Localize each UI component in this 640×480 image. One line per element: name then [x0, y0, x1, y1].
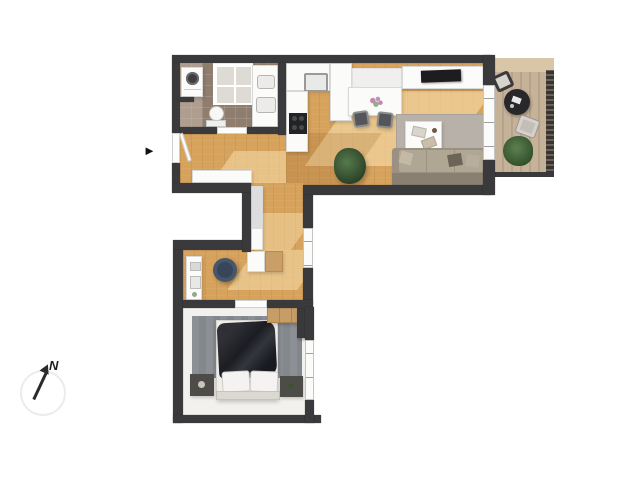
wall-bathroom-bottom-left: [180, 127, 217, 134]
wall-corridor-right-top: [303, 195, 313, 228]
wall-bathroom-bottom-right: [247, 127, 278, 134]
wall-left-entry: [172, 163, 180, 183]
shower: [213, 63, 253, 105]
toilet: [209, 106, 224, 121]
cup: [510, 104, 514, 108]
entrance-arrow-icon: ►: [143, 144, 156, 157]
bedroom-door: [235, 300, 267, 308]
balcony-table: [504, 89, 530, 115]
balcony-door-window: [483, 85, 495, 160]
desk: [186, 256, 202, 300]
wall-bedroom-right-bottom: [305, 400, 314, 423]
wall-left-lower: [173, 250, 183, 423]
kitchen-counter-side: [286, 91, 308, 152]
dining-chair: [376, 111, 394, 129]
stove: [289, 113, 307, 134]
bathroom-vanity: [252, 65, 278, 127]
laptop: [190, 276, 201, 289]
decor-item: [432, 128, 437, 133]
wall-living-right-top: [483, 55, 495, 85]
wall-bedroom-right-top: [305, 307, 314, 340]
wall-living-bottom: [303, 185, 492, 195]
burner: [299, 125, 304, 130]
nightstand: [280, 376, 303, 397]
hall-sideboard: [192, 170, 252, 183]
kitchen-sink: [304, 73, 328, 92]
kitchen-counter-top: [286, 63, 330, 91]
wall-hallway-bottom: [172, 183, 251, 193]
balcony-edge: [495, 172, 554, 177]
tv: [421, 69, 461, 82]
compass-north-label: N: [49, 358, 58, 373]
wall-lowerhall-top: [173, 240, 242, 250]
wall-top: [172, 55, 492, 63]
balcony-railing: [546, 70, 554, 174]
wall-bedroom-bottom: [173, 415, 321, 423]
chair-seat: [217, 262, 233, 278]
apartment-floor-plan: ► N: [0, 0, 640, 480]
wall-bathroom-partition: [178, 97, 194, 102]
dining-bench: [352, 68, 402, 88]
sink: [256, 97, 276, 113]
sofa: [392, 148, 490, 187]
toilet-tank: [206, 120, 226, 127]
hall-dresser-wood: [265, 251, 283, 272]
pillow: [221, 370, 250, 392]
washer-drum: [186, 72, 199, 85]
sink: [257, 75, 275, 89]
burner: [292, 125, 297, 130]
plant: [334, 148, 366, 184]
headboard: [216, 391, 280, 400]
wall-corridor-left: [242, 193, 251, 252]
balcony-plant: [503, 136, 533, 166]
bedroom-window: [305, 340, 314, 400]
chair-cushion: [495, 74, 511, 89]
entrance-door: [172, 133, 180, 163]
lamp: [198, 381, 205, 388]
throw-pillow: [447, 153, 463, 167]
bathroom-door: [217, 127, 247, 134]
wall-living-right-bottom: [483, 160, 495, 195]
throw-pillow: [465, 154, 480, 168]
desk-item: [190, 262, 201, 271]
nightstand: [190, 374, 214, 396]
burner: [299, 116, 304, 121]
desk-plant: [192, 292, 197, 297]
wall-bedroom-top-left: [183, 300, 235, 308]
nightstand-plant: [288, 383, 294, 389]
flower-vase: [368, 95, 384, 109]
north-compass-icon: N: [16, 360, 74, 418]
burner: [292, 116, 297, 121]
book: [411, 126, 427, 139]
hall-dresser: [247, 251, 265, 272]
wall-bathroom-kitchen: [278, 63, 286, 135]
corridor-wardrobe: [251, 186, 263, 250]
tray: [511, 96, 522, 105]
bed: [216, 320, 278, 400]
washer-divider: [184, 89, 201, 90]
pillow: [250, 371, 279, 393]
washing-machine: [181, 67, 203, 97]
desk-chair: [213, 258, 237, 282]
corridor-window: [303, 228, 313, 268]
chair-cushion: [520, 119, 536, 134]
dining-chair: [352, 110, 370, 128]
